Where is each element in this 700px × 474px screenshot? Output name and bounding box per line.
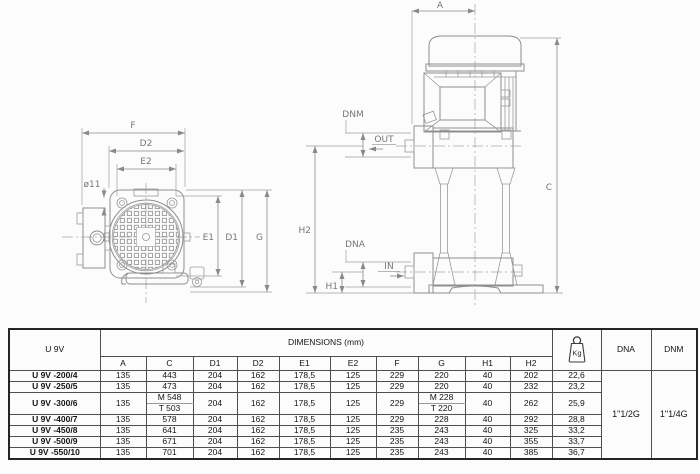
dim-cell: 178,5 (279, 426, 330, 437)
table-row: U 9V -550/10 135 701 204 162 178,5 125 2… (9, 448, 697, 459)
col-header-d1: D1 (193, 357, 237, 371)
dim-cell: 125 (330, 393, 376, 415)
dim-cell: 162 (237, 437, 279, 448)
dim-A: A (412, 1, 475, 124)
dim-cell: 202 (510, 371, 552, 382)
dna-column-header: DNA (601, 329, 651, 371)
weight-cell: 36,7 (552, 448, 601, 459)
dim-label-d2: D2 (140, 139, 153, 149)
dim-cell: 40 (465, 393, 510, 415)
dim-cell: 135 (100, 448, 146, 459)
table-row: U 9V -400/7 135 578 204 162 178,5 125 22… (9, 415, 697, 426)
dim-label-d1: D1 (225, 233, 238, 243)
col-header-h1: H1 (465, 357, 510, 371)
dim-cell: 125 (330, 371, 376, 382)
out-label: OUT (374, 135, 394, 145)
dim-cell: 162 (237, 382, 279, 393)
col-header-g: G (418, 357, 465, 371)
inlet-flange (414, 253, 433, 293)
pump-front-view: F D2 E2 ø11 (62, 121, 272, 303)
pump-side-view: A C H2 DNM OUT (299, 1, 564, 308)
dim-cell: 125 (330, 382, 376, 393)
dim-cell: 125 (330, 426, 376, 437)
dim-label-g: G (256, 233, 263, 243)
table-header-row: U 9V DIMENSIONS (mm) Kg DNA DNM (9, 329, 697, 357)
dim-cell: 235 (376, 426, 418, 437)
fan-cover (104, 200, 190, 274)
dimensions-header: DIMENSIONS (mm) (100, 329, 552, 357)
dim-cell: 443 (146, 371, 193, 382)
dim-cell-split: T 503 (146, 404, 193, 415)
dim-cell: 178,5 (279, 415, 330, 426)
dim-cell: 204 (193, 426, 237, 437)
model-column-header: U 9V (9, 329, 100, 371)
dim-cell: 162 (237, 393, 279, 415)
dim-cell: 292 (510, 415, 552, 426)
dim-cell: 40 (465, 371, 510, 382)
dnm-value-cell: 1"1/4G (651, 371, 697, 459)
dim-cell: 178,5 (279, 382, 330, 393)
terminal-box (424, 73, 510, 132)
weight-unit-label: Kg (572, 349, 581, 358)
weight-cell: 22,6 (552, 371, 601, 382)
col-header-e2: E2 (330, 357, 376, 371)
dim-cell: 243 (418, 437, 465, 448)
dim-cell: 229 (376, 382, 418, 393)
dim-cell: 325 (510, 426, 552, 437)
side-port-flange (77, 208, 110, 268)
dimensional-drawings: F D2 E2 ø11 (0, 0, 700, 326)
dim-F: F (82, 121, 185, 205)
dim-label-hole-dia: ø11 (84, 180, 101, 190)
dim-cell-split: M 548 (146, 393, 193, 404)
dim-cell: 135 (100, 426, 146, 437)
dim-DNM: DNM (342, 110, 411, 157)
dim-label-f: F (130, 121, 135, 131)
dim-label-e1: E1 (203, 233, 214, 243)
dim-cell: 135 (100, 382, 146, 393)
dim-cell: 162 (237, 426, 279, 437)
dim-cell: 40 (465, 448, 510, 459)
model-cell: U 9V -200/4 (9, 371, 100, 382)
dim-cell: 204 (193, 382, 237, 393)
col-header-f: F (376, 357, 418, 371)
weight-cell: 33,2 (552, 426, 601, 437)
dim-cell: 235 (376, 437, 418, 448)
dim-cell: 235 (376, 448, 418, 459)
dim-cell: 262 (510, 393, 552, 415)
dim-cell: 578 (146, 415, 193, 426)
dim-cell: 220 (418, 371, 465, 382)
col-header-c: C (146, 357, 193, 371)
dim-cell: 178,5 (279, 371, 330, 382)
priming-plug (423, 111, 436, 123)
dim-cell: 178,5 (279, 448, 330, 459)
table-row: U 9V -300/6 135 M 548 204 162 178,5 125 … (9, 393, 697, 404)
dim-cell: 178,5 (279, 393, 330, 415)
dim-cell: 135 (100, 393, 146, 415)
dim-cell: 125 (330, 448, 376, 459)
dim-label-dnm: DNM (342, 110, 363, 120)
suction-base (405, 253, 543, 293)
dim-cell: 232 (510, 382, 552, 393)
dim-cell: 40 (465, 426, 510, 437)
in-annotation: IN (378, 262, 404, 276)
dim-cell: 204 (193, 448, 237, 459)
weight-cell: 33,7 (552, 437, 601, 448)
dim-cell: 243 (418, 448, 465, 459)
dim-hole-diameter: ø11 (84, 180, 104, 214)
dim-H1: H1 (326, 272, 364, 293)
dim-cell: 204 (193, 371, 237, 382)
dim-cell: 135 (100, 415, 146, 426)
dim-cell: 125 (330, 437, 376, 448)
table-row: U 9V -500/9 135 671 204 162 178,5 125 23… (9, 437, 697, 448)
dim-cell: 228 (418, 415, 465, 426)
model-cell: U 9V -550/10 (9, 448, 100, 459)
dim-cell: 229 (376, 415, 418, 426)
col-header-e1: E1 (279, 357, 330, 371)
out-annotation: OUT (369, 135, 396, 149)
dim-H2: H2 (299, 146, 364, 293)
dnm-column-header: DNM (651, 329, 697, 371)
dim-cell: 701 (146, 448, 193, 459)
dim-label-a: A (437, 1, 444, 11)
dim-cell: 220 (418, 382, 465, 393)
dimensions-table: U 9V DIMENSIONS (mm) Kg DNA DNM A C D1 D… (8, 328, 698, 460)
dim-cell: 204 (193, 415, 237, 426)
dim-DNA: DNA (345, 240, 411, 287)
model-cell: U 9V -450/8 (9, 426, 100, 437)
dim-cell: 671 (146, 437, 193, 448)
col-header-a: A (100, 357, 146, 371)
dim-cell-split: T 220 (418, 404, 465, 415)
dim-cell: 135 (100, 437, 146, 448)
dim-cell: 40 (465, 382, 510, 393)
dim-label-dna: DNA (345, 240, 366, 250)
dim-label-e2: E2 (140, 157, 151, 167)
datasheet-page: F D2 E2 ø11 (0, 0, 700, 474)
weight-cell: 28,8 (552, 415, 601, 426)
weight-icon: Kg (566, 335, 588, 365)
dim-cell: 385 (510, 448, 552, 459)
dim-cell: 473 (146, 382, 193, 393)
in-label: IN (384, 262, 393, 272)
dim-cell: 162 (237, 371, 279, 382)
dim-cell: 229 (376, 393, 418, 415)
dim-cell: 204 (193, 393, 237, 415)
model-cell: U 9V -400/7 (9, 415, 100, 426)
dim-cell: 243 (418, 426, 465, 437)
table-row: U 9V -200/4 135 443 204 162 178,5 125 22… (9, 371, 697, 382)
table-row: U 9V -450/8 135 641 204 162 178,5 125 23… (9, 426, 697, 437)
weight-cell: 23,2 (552, 382, 601, 393)
dim-cell: 162 (237, 448, 279, 459)
dim-label-c: C (546, 183, 552, 193)
col-header-h2: H2 (510, 357, 552, 371)
dim-cell: 355 (510, 437, 552, 448)
motor (424, 36, 524, 131)
table-row: U 9V -250/5 135 473 204 162 178,5 125 22… (9, 382, 697, 393)
col-header-d2: D2 (237, 357, 279, 371)
dim-cell: 125 (330, 415, 376, 426)
dim-cell: 641 (146, 426, 193, 437)
dim-label-h1: H1 (326, 282, 339, 292)
dim-cell: 40 (465, 437, 510, 448)
dna-value-cell: 1"1/2G (601, 371, 651, 459)
model-cell: U 9V -300/6 (9, 393, 100, 415)
weight-column-header: Kg (552, 329, 601, 371)
model-cell: U 9V -250/5 (9, 382, 100, 393)
dim-C: C (520, 38, 561, 293)
dim-label-h2: H2 (299, 226, 312, 236)
dim-cell: 162 (237, 415, 279, 426)
model-cell: U 9V -500/9 (9, 437, 100, 448)
dim-cell: 135 (100, 371, 146, 382)
dim-cell-split: M 228 (418, 393, 465, 404)
dim-cell: 178,5 (279, 437, 330, 448)
weight-cell: 25,9 (552, 393, 601, 415)
dim-cell: 229 (376, 371, 418, 382)
dim-cell: 204 (193, 437, 237, 448)
dim-cell: 40 (465, 415, 510, 426)
